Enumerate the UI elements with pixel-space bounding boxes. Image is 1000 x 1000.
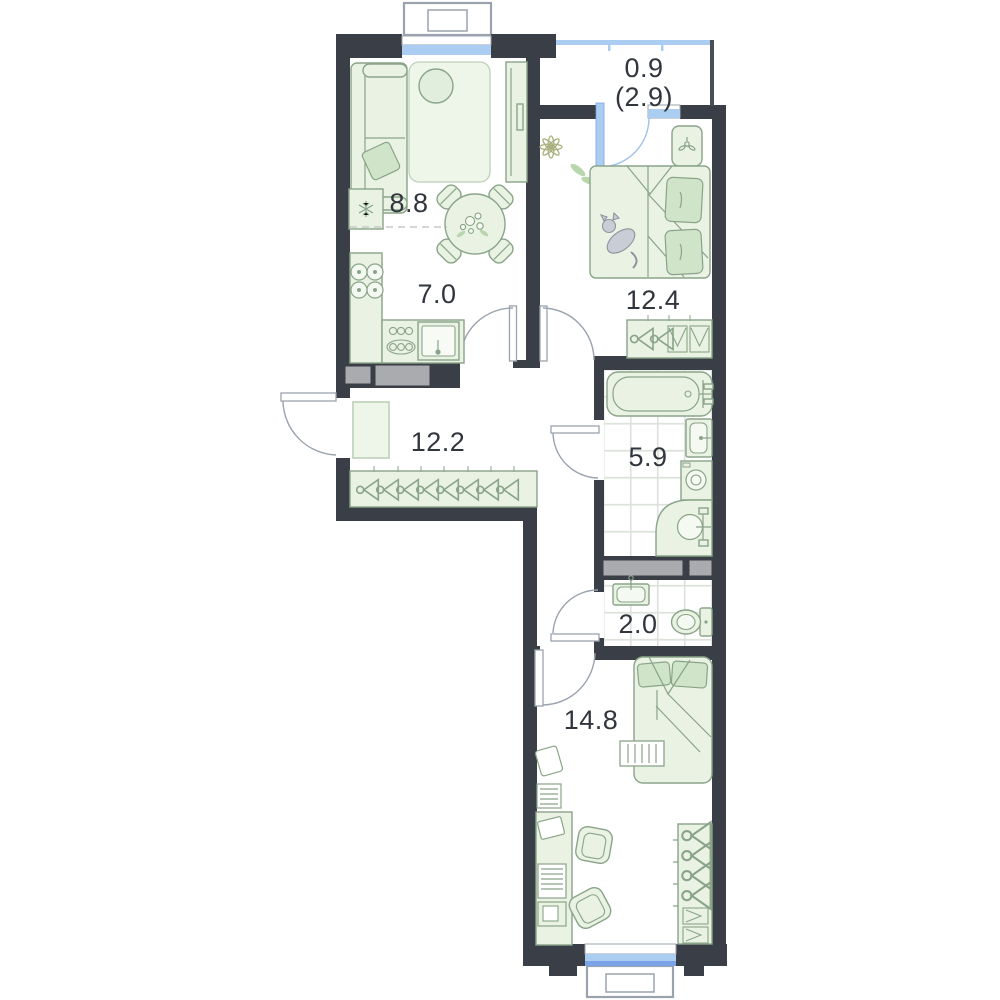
desk-chair-2 <box>566 885 614 932</box>
tv-unit <box>506 62 527 182</box>
label-bathroom: 5.9 <box>628 442 667 472</box>
washing-machine-icon <box>681 461 712 500</box>
rug <box>409 62 490 182</box>
label-bedroom: 12.4 <box>626 285 681 315</box>
vanity-sink-icon <box>656 500 712 556</box>
window-living <box>402 36 491 55</box>
window-bedroom2 <box>585 944 676 966</box>
doormat <box>353 402 389 458</box>
plant-icon <box>540 136 562 158</box>
desk <box>536 812 572 945</box>
bedroom2-wardrobe <box>673 822 712 944</box>
balcony-glazing <box>556 40 710 51</box>
floorplan-canvas: 8.8 7.0 12.4 12.2 5.9 2.0 14.8 0.9 (2.9) <box>0 0 1000 1000</box>
label-living: 8.8 <box>389 188 428 218</box>
entrance-door <box>281 393 336 455</box>
bedroom-door <box>540 306 594 361</box>
kitchen-sink-icon <box>418 322 459 360</box>
hallway-wardrobe <box>350 466 537 507</box>
floor-plan: 8.8 7.0 12.4 12.2 5.9 2.0 14.8 0.9 (2.9) <box>0 0 1000 1000</box>
label-balcony: 0.9 <box>624 53 663 83</box>
dining-table <box>434 182 516 266</box>
nightstand <box>672 126 702 166</box>
bedroom-wardrobe <box>627 315 712 358</box>
bedroom2-door <box>535 650 595 706</box>
fridge-icon <box>349 189 383 229</box>
balcony-slab-top <box>404 3 491 35</box>
bathroom-door <box>551 426 599 478</box>
label-hallway: 12.2 <box>411 427 466 457</box>
label-balcony-secondary: (2.9) <box>615 82 673 112</box>
label-kitchen: 7.0 <box>417 279 456 309</box>
wc-door <box>551 590 599 641</box>
label-bedroom2: 14.8 <box>564 705 619 735</box>
living-door <box>460 306 517 361</box>
toilet-icon <box>672 608 713 636</box>
bench-rail <box>620 741 664 766</box>
wall-shelf <box>535 745 563 808</box>
balcony-door <box>596 103 649 167</box>
bathroom-sink-icon <box>686 419 712 457</box>
balcony-slab-bottom <box>587 966 673 997</box>
bathtub-icon <box>607 372 713 416</box>
desk-chair-1 <box>574 825 613 864</box>
label-wc: 2.0 <box>618 609 657 639</box>
